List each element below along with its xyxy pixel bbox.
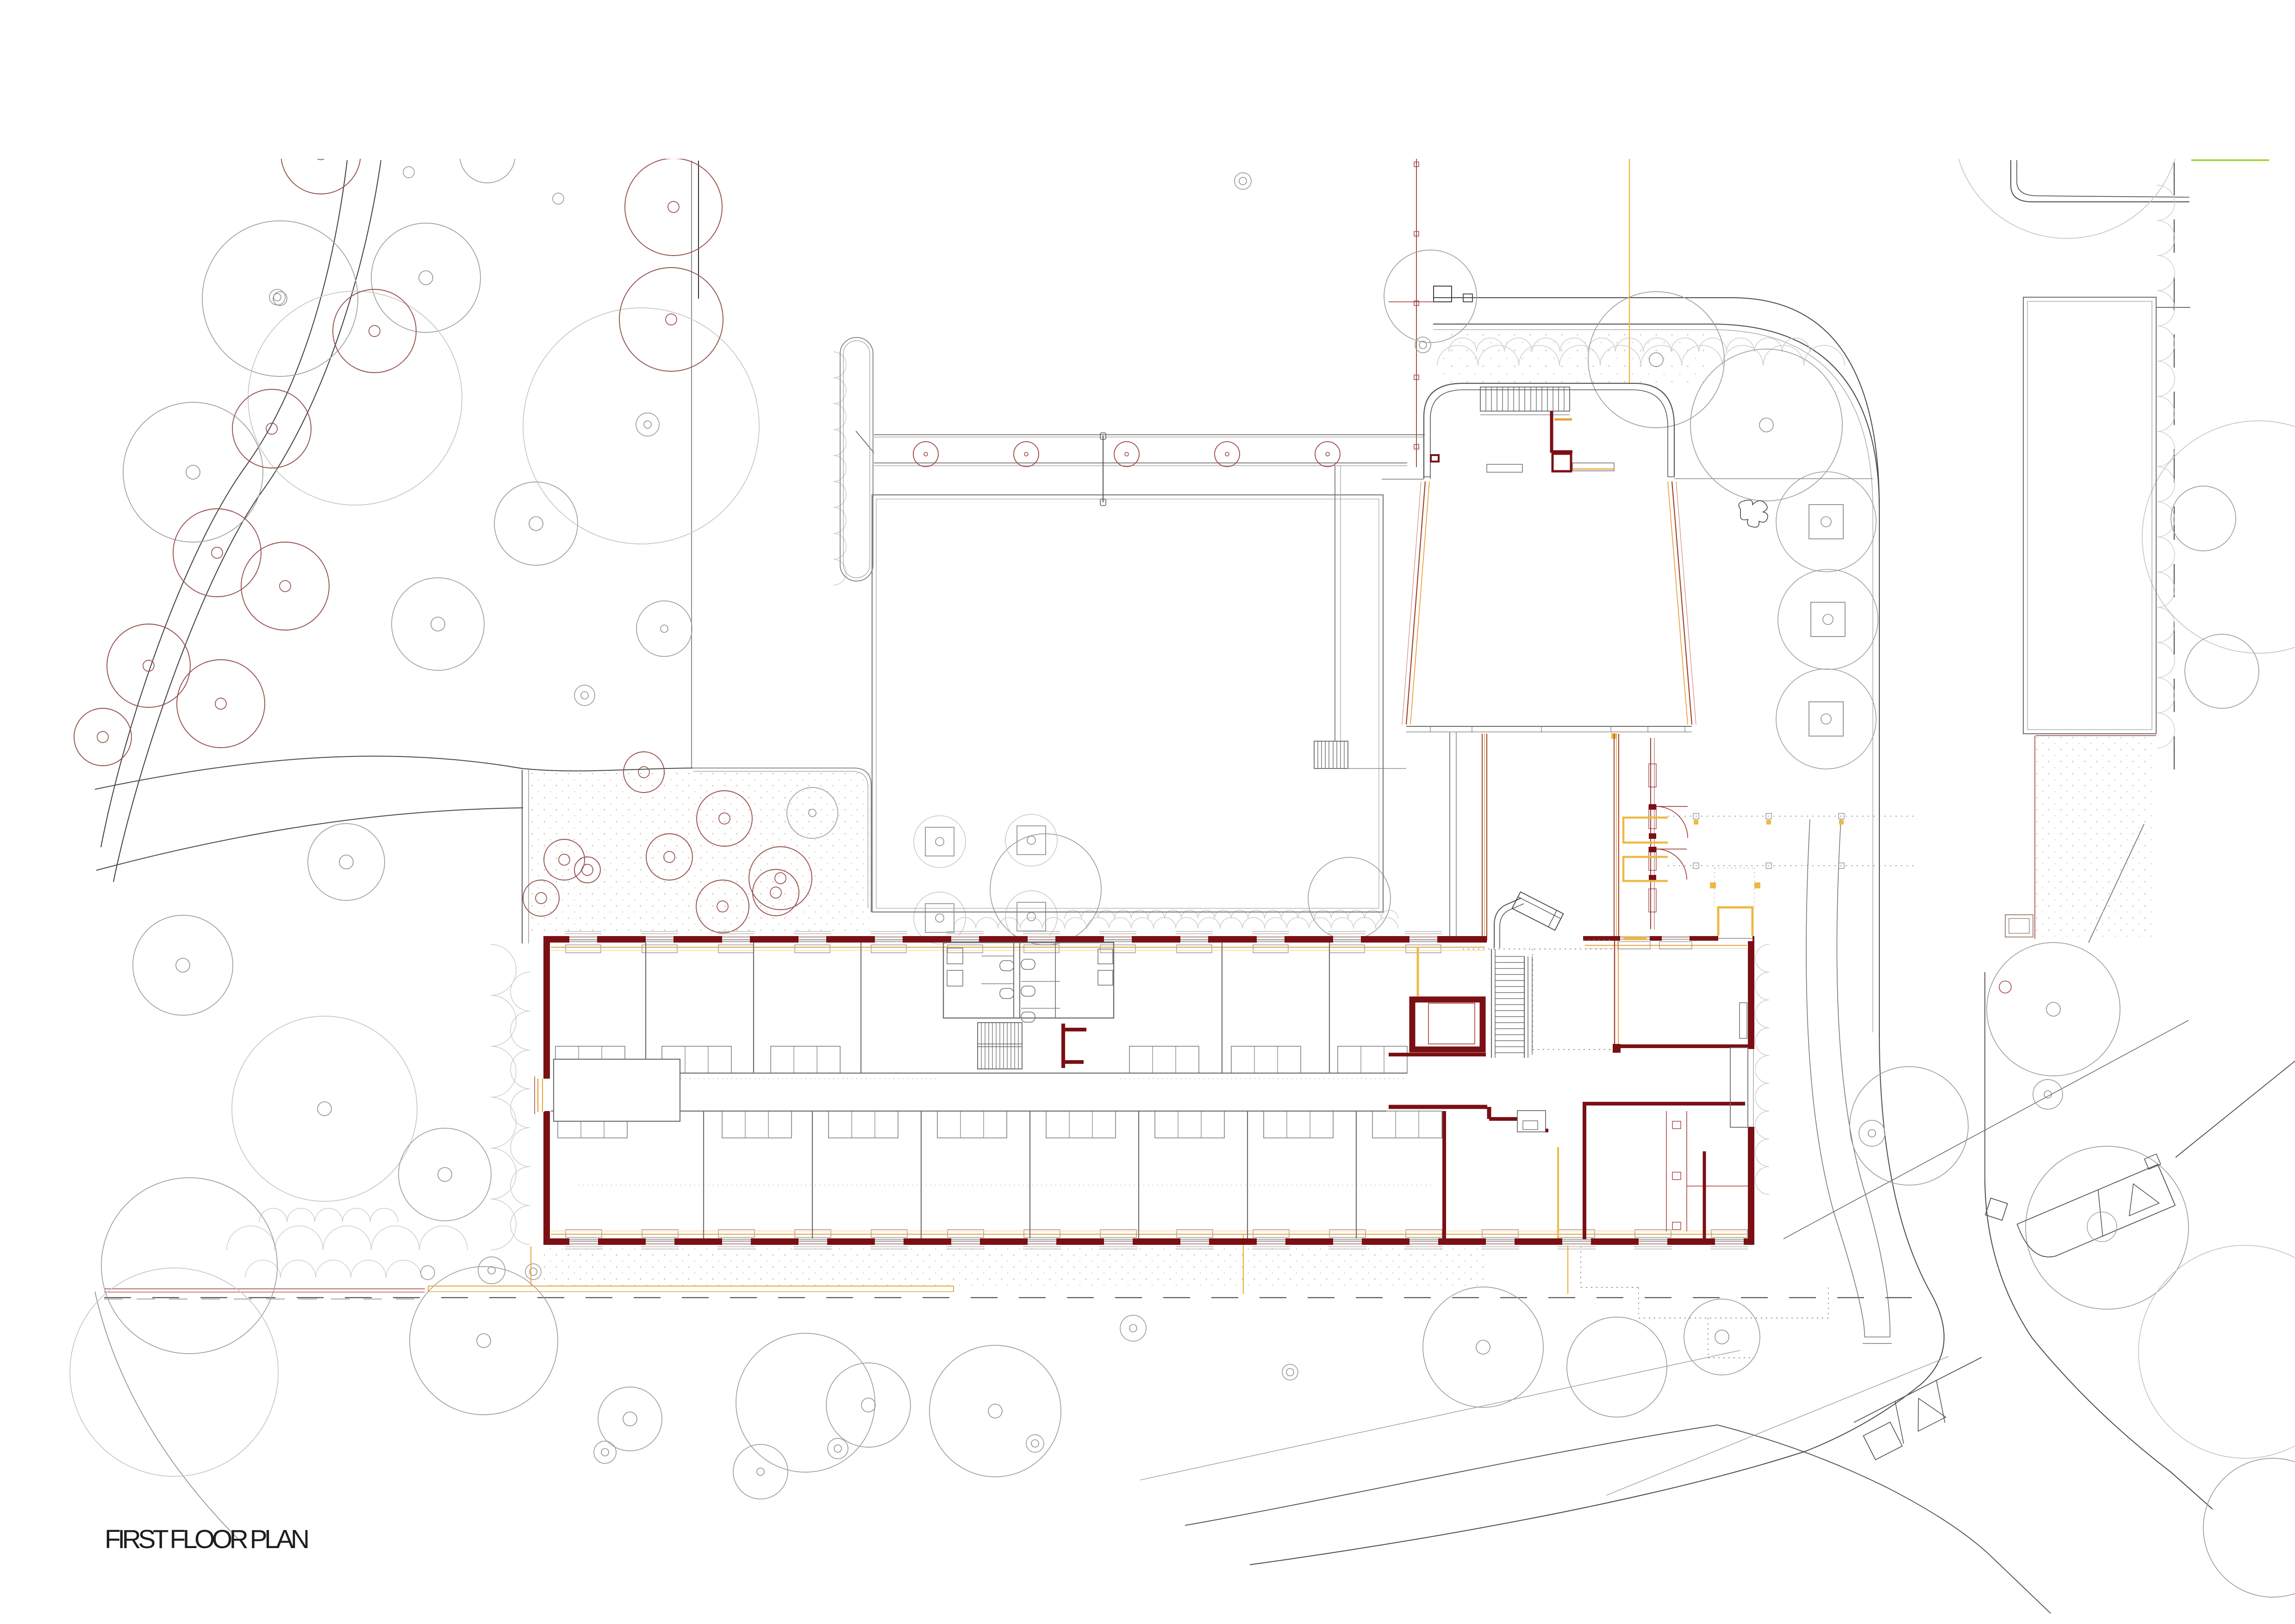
svg-text:FIRST FLOOR PLAN: FIRST FLOOR PLAN — [105, 1524, 308, 1554]
